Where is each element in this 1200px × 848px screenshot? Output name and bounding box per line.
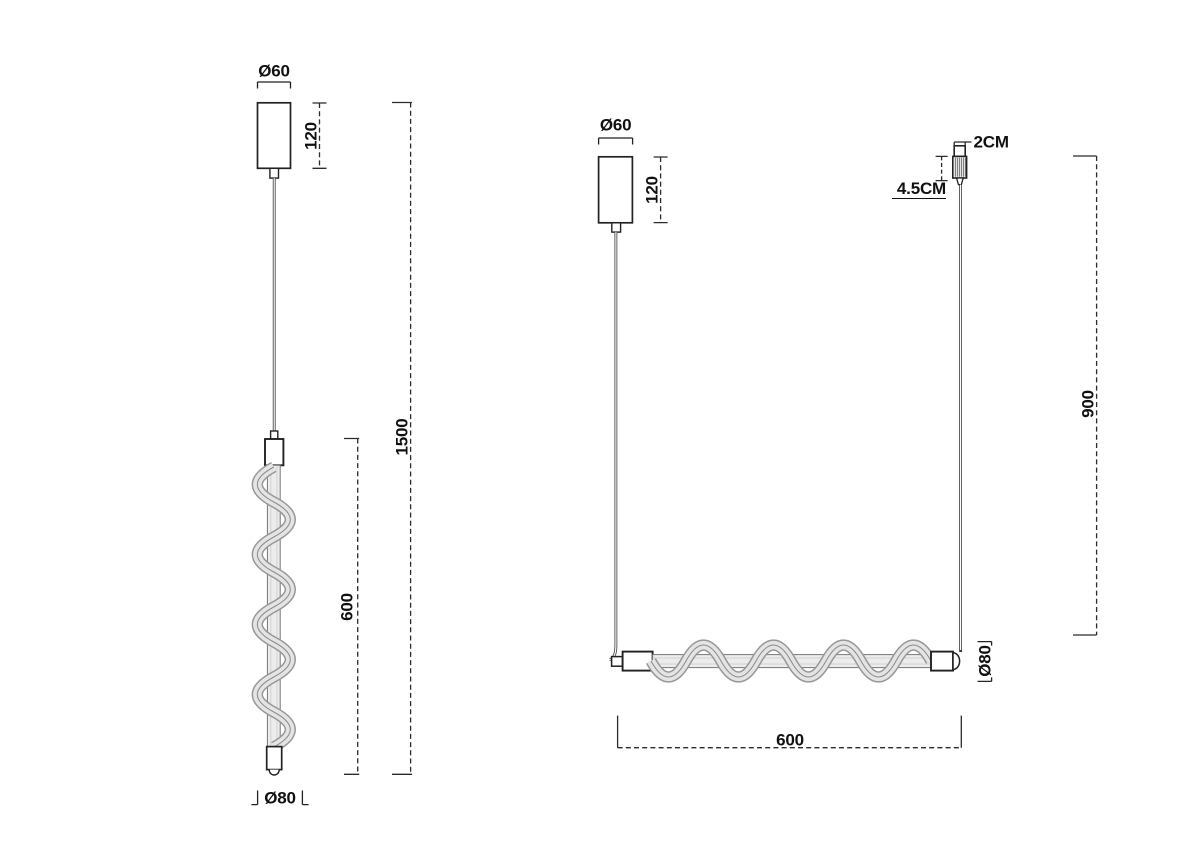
left-lamp-drawing (251, 82, 308, 805)
cable-gripper-taper (957, 178, 964, 185)
left-canopy (258, 103, 291, 169)
dim-label-right-tube-diameter: Ø80 (977, 646, 994, 678)
right-left-suspension-cable (610, 232, 616, 659)
dim-label-right-tube-length: 600 (776, 731, 804, 748)
left-canopy-neck (270, 168, 279, 178)
right-lamp-drawing (599, 138, 992, 681)
dim-label-left-tube-diameter: Ø80 (264, 789, 296, 806)
dim-label-gripper-length: 4.5CM (892, 181, 946, 199)
left-tube-socket (265, 439, 283, 465)
left-bottom-cap-dome (269, 770, 279, 775)
dim-label-left-overall-drop: 1500 (394, 418, 411, 455)
right-canopy (599, 157, 633, 223)
right-tube-right-dome (953, 653, 960, 670)
pendant-lamp-dimension-drawing: Ø60 120 600 1500 Ø80 Ø60 120 2CM 4.5CM 9… (0, 0, 1200, 848)
dim-label-left-canopy-diameter: Ø60 (258, 63, 290, 80)
left-cable-stub (271, 431, 278, 439)
dim-label-left-fixture-length: 600 (338, 593, 355, 621)
right-tube-right-cap (931, 652, 953, 671)
dim-label-right-canopy-height: 120 (644, 176, 661, 204)
dim-label-suspension-drop: 900 (1080, 390, 1097, 418)
right-tube-left-protrusion (612, 657, 623, 667)
left-canopy-diameter-bracket (258, 82, 291, 89)
right-tube-left-cap (623, 652, 653, 671)
dim-label-gripper-width: 2CM (974, 133, 1009, 150)
right-canopy-neck (612, 223, 621, 232)
dim-label-right-canopy-diameter: Ø60 (600, 117, 632, 134)
dim-label-left-canopy-height: 120 (303, 122, 320, 150)
cable-gripper-cap (954, 146, 965, 157)
left-bottom-cap (267, 747, 282, 770)
right-canopy-diameter-bracket (599, 138, 633, 145)
